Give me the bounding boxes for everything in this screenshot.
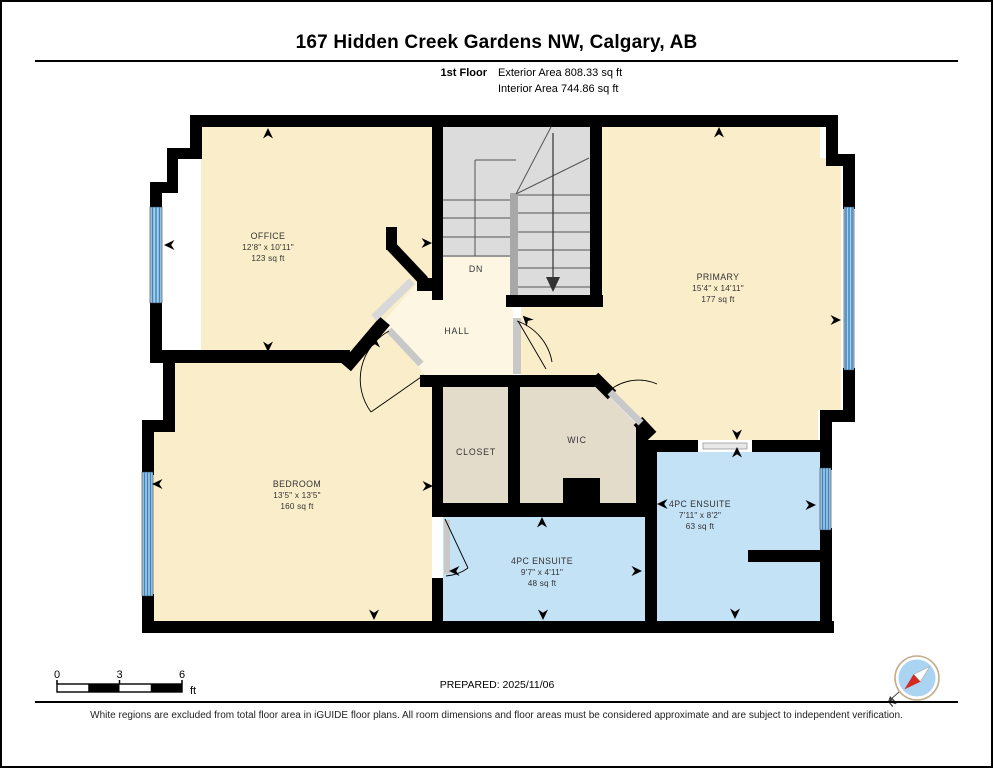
compass-north-label: N	[887, 697, 900, 710]
ensuite-window	[820, 468, 831, 530]
bedroom-window	[142, 472, 153, 596]
ensuite-right-label: 4PC ENSUITE	[669, 499, 731, 509]
dn-label: DN	[469, 264, 483, 274]
ensuite-mid-dims: 9'7" x 4'11"	[521, 568, 563, 577]
scale-bar: 0 3 6 ft	[54, 669, 196, 697]
closet-label: CLOSET	[456, 447, 496, 457]
footer-divider	[35, 701, 958, 703]
scale-tick-6: 6	[179, 669, 185, 681]
bedroom-area: 160 sq ft	[280, 502, 314, 511]
primary-dims: 15'4" x 14'11"	[692, 284, 744, 293]
bedroom-label: BEDROOM	[273, 479, 321, 489]
hall-label: HALL	[444, 326, 469, 336]
scale-tick-3: 3	[116, 669, 122, 681]
office-area: 123 sq ft	[251, 254, 285, 263]
ensuite-mid-area: 48 sq ft	[528, 579, 557, 588]
floor-plan: OFFICE 12'8" x 10'11" 123 sq ft PRIMARY …	[0, 0, 993, 768]
scale-tick-0: 0	[54, 669, 60, 681]
wic-chase	[563, 478, 600, 503]
primary-window	[844, 207, 854, 370]
bedroom-room	[153, 325, 432, 622]
office-label: OFFICE	[251, 231, 286, 241]
ensuite-right-area: 63 sq ft	[686, 522, 715, 531]
primary-area: 177 sq ft	[701, 295, 735, 304]
bedroom-dims: 13'5" x 13'5"	[273, 491, 321, 500]
disclaimer-text: White regions are excluded from total fl…	[0, 710, 993, 721]
office-dims: 12'8" x 10'11"	[242, 243, 294, 252]
scale-unit: ft	[190, 685, 196, 697]
closet-room	[443, 387, 508, 503]
ensuite-right-dims: 7'11" x 8'2"	[679, 511, 721, 520]
prepared-date: PREPARED: 2025/11/06	[440, 679, 555, 691]
primary-label: PRIMARY	[697, 272, 740, 282]
ensuite-mid-label: 4PC ENSUITE	[511, 556, 573, 566]
ensuite-right-room	[657, 452, 820, 622]
ensuite-right-opening	[698, 440, 752, 452]
wic-label: WIC	[567, 435, 587, 445]
stair-rail	[510, 193, 518, 295]
office-window	[150, 207, 162, 303]
